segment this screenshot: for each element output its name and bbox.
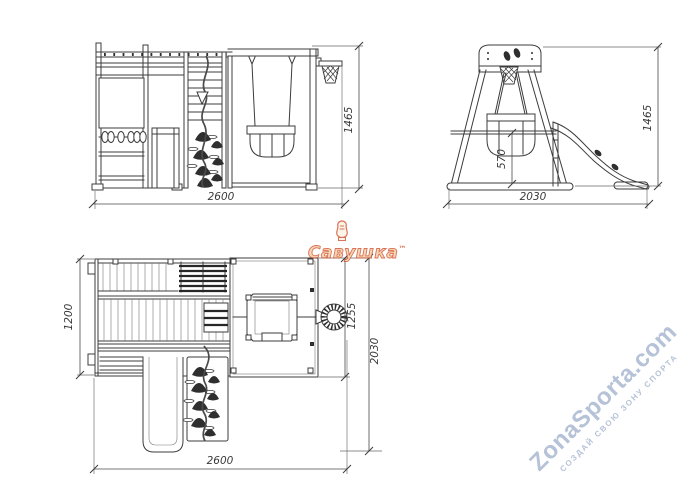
side-basketball-net bbox=[500, 67, 518, 84]
side-elevation-view: 1465 2030 570 bbox=[443, 43, 662, 209]
side-dim-seat-height-label: 570 bbox=[496, 149, 508, 169]
front-elevation-view: 1465 2600 bbox=[89, 42, 363, 209]
drawing-canvas: 1465 2600 bbox=[0, 0, 700, 491]
side-dim-height-label: 1465 bbox=[642, 104, 654, 131]
front-basketball-hoop bbox=[316, 58, 342, 83]
front-climbing-wall bbox=[184, 52, 226, 188]
front-swing bbox=[247, 57, 295, 157]
front-dim-width-label: 2600 bbox=[208, 191, 235, 203]
front-slide bbox=[152, 128, 179, 188]
side-dim-width-label: 2030 bbox=[520, 191, 547, 203]
plan-dim-total-depth-label: 2030 bbox=[369, 337, 381, 364]
plan-dim-width-label: 2600 bbox=[207, 455, 234, 467]
plan-view: 1200 2600 1255 2030 bbox=[63, 254, 382, 474]
technical-drawing-page: 1465 2600 bbox=[0, 0, 700, 491]
front-abacus bbox=[99, 132, 146, 143]
plan-slide bbox=[143, 357, 183, 452]
plan-swing-seat bbox=[246, 294, 297, 341]
plan-dim-bay-depth-label: 1255 bbox=[346, 302, 358, 329]
plan-basketball-hoop bbox=[316, 304, 347, 330]
plan-dim-tower-depth-label: 1200 bbox=[63, 303, 75, 330]
plan-climbing-wall bbox=[183, 346, 228, 441]
front-swing-bay bbox=[228, 49, 318, 190]
front-dim-height-label: 1465 bbox=[343, 106, 355, 133]
